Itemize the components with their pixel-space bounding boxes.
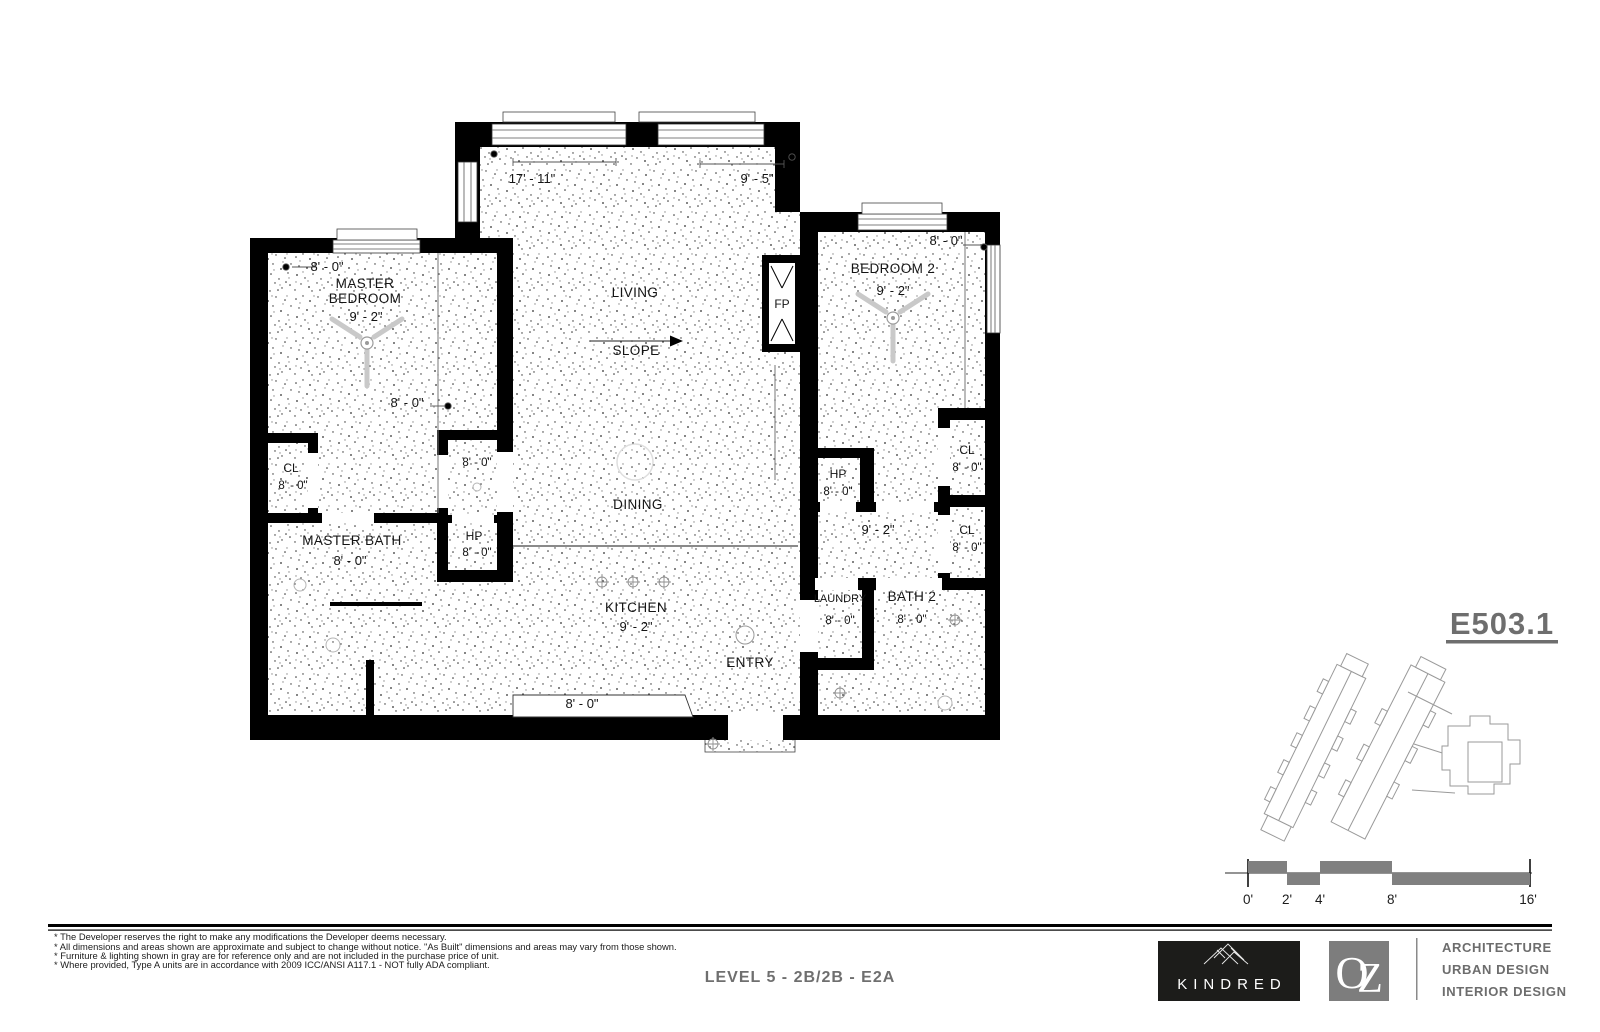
door-opening <box>800 600 818 652</box>
room-label-cl-master: CL <box>283 461 299 475</box>
footer: * The Developer reserves the right to ma… <box>48 924 1567 1002</box>
door-opening <box>938 428 950 486</box>
service-line: INTERIOR DESIGN <box>1442 984 1567 999</box>
bath-partition-stub <box>366 660 374 715</box>
wall-segment <box>250 238 268 740</box>
ceiling-height-bedroom2: 9' - 2" <box>876 283 909 298</box>
sheet-title: LEVEL 5 - 2B/2B - E2A <box>705 969 896 986</box>
general-notes: * The Developer reserves the right to ma… <box>54 931 677 970</box>
window <box>333 240 420 253</box>
room-label-cl-upper: CL <box>959 443 975 457</box>
door-opening <box>497 452 513 512</box>
ceiling-height-cl-master: 8' - 0" <box>278 480 307 492</box>
footer-divider <box>1416 938 1418 1000</box>
ceiling-height-cl-lower: 8' - 0" <box>952 542 981 554</box>
room-label-master-1: MASTER <box>336 276 395 291</box>
wall-segment <box>497 238 513 582</box>
wall-segment <box>862 578 874 670</box>
sheet-number-underline <box>1446 640 1558 644</box>
window <box>458 162 477 222</box>
room-label-kitchen: KITCHEN <box>605 600 667 615</box>
window-sill <box>639 112 755 122</box>
window-sill <box>862 203 942 214</box>
fireplace-label: FP <box>774 297 789 311</box>
room-label-laundry: LAUNDRY <box>814 593 867 605</box>
door-opening <box>308 453 318 508</box>
window <box>858 214 947 230</box>
scale-tick-label: 2' <box>1282 892 1292 907</box>
room-label-entry: ENTRY <box>726 655 774 670</box>
floor-plan: FP <box>250 112 1000 752</box>
entry-threshold <box>705 738 795 752</box>
footer-rule-thick <box>48 924 1552 927</box>
wall-segment <box>437 570 513 582</box>
sheet-number: E503.1 <box>1450 606 1554 641</box>
scale-tick-label: 8' <box>1387 892 1397 907</box>
scale-tick-label: 0' <box>1243 892 1253 907</box>
room-label-master-bath: MASTER BATH <box>302 533 401 548</box>
room-label-dining: DINING <box>613 497 663 512</box>
wall-segment <box>437 430 513 440</box>
key-map-building-right-inner <box>1468 742 1502 782</box>
door-opening <box>815 578 858 590</box>
room-label-living: LIVING <box>612 285 659 300</box>
door-opening <box>322 513 374 523</box>
window <box>658 124 764 145</box>
door-opening <box>452 515 494 523</box>
dim-living-width: 17' - 11" <box>509 171 556 186</box>
door-opening <box>876 502 934 512</box>
service-line: URBAN DESIGN <box>1442 962 1550 977</box>
drawing-sheet: FP <box>0 0 1600 1032</box>
room-label-master-2: BEDROOM <box>329 291 402 306</box>
room-label-cl-lower: CL <box>959 523 975 537</box>
ceiling-height-master-bath: 8' - 0" <box>333 553 366 568</box>
ceiling-height-hp-right: 8' - 0" <box>823 486 852 498</box>
ceiling-height-hp-left: 8' - 0" <box>462 547 491 559</box>
window-sill <box>503 112 615 122</box>
slope-label: SLOPE <box>612 343 659 358</box>
room-label-bath2: BATH 2 <box>888 589 937 604</box>
window-sill <box>337 229 417 240</box>
ceiling-height-bath2: 8' - 0" <box>897 614 926 626</box>
note-line: * Where provided, Type A units are in ac… <box>54 959 490 970</box>
wall-segment <box>800 658 874 670</box>
scale-tick-label: 16' <box>1519 892 1537 907</box>
ceiling-height-kitchen: 9' - 2" <box>619 619 652 634</box>
firm-services: ARCHITECTURE URBAN DESIGN INTERIOR DESIG… <box>1442 940 1567 999</box>
dim-kitchen-bottom: 8' - 0" <box>565 696 598 711</box>
floor-plan-sheet-svg: FP <box>0 0 1600 1032</box>
door-opening <box>437 455 448 508</box>
wall-segment <box>775 122 800 212</box>
door-opening <box>938 515 950 573</box>
wall-segment <box>250 715 1000 740</box>
window <box>492 124 626 145</box>
ceiling-fan-hub-dot <box>365 341 369 345</box>
kindred-wordmark: KINDRED <box>1177 976 1287 993</box>
ceiling-height-hall: 9' - 2" <box>861 522 894 537</box>
dim-bedroom2: 8' - 0" <box>929 233 962 248</box>
fireplace: FP <box>762 255 802 352</box>
oz-letter-z: Z <box>1357 956 1383 1002</box>
sheet-number-block: E503.1 <box>1446 606 1558 644</box>
kindred-logo: KINDRED <box>1158 941 1300 1001</box>
room-label-hp-left: HP <box>466 529 483 543</box>
dim-master-mid: 8' - 0" <box>390 395 423 410</box>
bath-counter-line <box>330 602 422 606</box>
scale-bar-blocks <box>1248 861 1530 885</box>
door-opening <box>820 502 856 512</box>
scale-tick-label: 4' <box>1315 892 1325 907</box>
ceiling-height-cl-upper: 8' - 0" <box>952 462 981 474</box>
wall-segment <box>938 495 1000 507</box>
ceiling-height-master: 9' - 2" <box>349 309 382 324</box>
dim-master-top: 8' - 0" <box>310 259 343 274</box>
service-line: ARCHITECTURE <box>1442 940 1552 955</box>
scale-bar: 0' 2' 4' 8' 16' <box>1225 859 1537 907</box>
dim-living-right: 9' - 5" <box>740 171 773 186</box>
kitchen-counter <box>513 695 693 717</box>
room-label-hp-right: HP <box>830 467 847 481</box>
ceiling-fan-hub-dot <box>891 316 895 320</box>
key-map <box>1252 649 1520 844</box>
ceiling-height-closet: 8' - 0" <box>462 457 491 469</box>
oz-logo: O Z <box>1329 941 1389 1002</box>
room-label-bedroom2: BEDROOM 2 <box>851 261 936 276</box>
window <box>987 245 1000 333</box>
entry-door-opening <box>728 715 783 740</box>
ceiling-height-laundry: 8' - 0" <box>825 615 854 627</box>
